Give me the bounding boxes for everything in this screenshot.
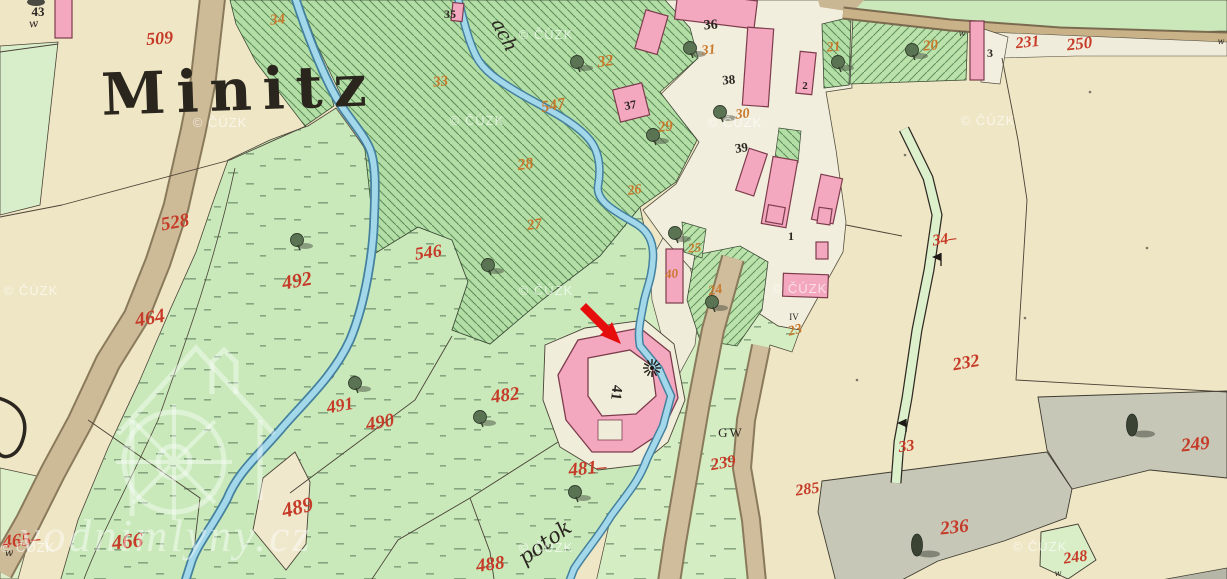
house-number-black: 38 xyxy=(722,72,737,88)
cuzk-watermark-text: © ČÚZK xyxy=(193,115,248,130)
tree-canopy xyxy=(569,486,582,499)
cuzk-watermark-text: © ČÚZK xyxy=(773,281,828,296)
parcel-number-orange: 33 xyxy=(431,73,449,91)
tree-canopy xyxy=(912,534,923,556)
parcel-number-orange: 24 xyxy=(706,282,723,299)
cuzk-watermark-text: © ČÚZK xyxy=(4,283,59,298)
cuzk-watermark-text: © ČÚZK xyxy=(961,113,1016,128)
field-speck xyxy=(904,154,907,157)
parcel-number-orange: 40 xyxy=(663,265,679,281)
tree-canopy xyxy=(482,259,495,272)
cuzk-watermark-text: © ČÚZK xyxy=(1013,539,1068,554)
parcel-number-red: 546 xyxy=(413,240,443,264)
cuzk-watermark-text: © ČÚZK xyxy=(708,115,763,130)
parcel-number-orange: 29 xyxy=(656,118,675,136)
script-w-mark: w xyxy=(1055,569,1062,578)
wheel-hub xyxy=(650,366,654,370)
cuzk-watermark-text: © ČÚZK xyxy=(519,540,574,555)
parcel-number-red: 250 xyxy=(1065,33,1094,55)
field-speck xyxy=(1146,247,1149,250)
house-number-black: 2 xyxy=(802,80,808,92)
script-w-mark: w xyxy=(959,29,966,38)
parcel-number-orange: 21 xyxy=(825,39,841,55)
parcel-number-red: 482 xyxy=(489,383,522,408)
parcel-number-red: 236 xyxy=(938,516,970,540)
building xyxy=(817,207,832,225)
field-speck xyxy=(1089,91,1092,94)
parcel-number-orange: 31 xyxy=(700,42,716,58)
parcel-number-red: 231 xyxy=(1014,33,1041,53)
tree-canopy xyxy=(684,42,697,55)
roman-iv-label: IV xyxy=(789,312,799,322)
cuzk-watermark-text: © ČÚZK xyxy=(519,27,574,42)
building xyxy=(816,242,828,259)
parcel-number-orange: 27 xyxy=(525,216,544,234)
parcel-number-orange: 34 xyxy=(268,11,286,29)
parcel-number-red: 285 xyxy=(793,479,820,499)
parcel-number-red: 509 xyxy=(145,27,173,49)
parcel-number-red: 481– xyxy=(566,456,607,481)
watermark-site-text: vodnimlyny.cz xyxy=(20,511,313,561)
tree-canopy xyxy=(474,411,487,424)
tree-canopy xyxy=(669,227,682,240)
building xyxy=(766,205,786,225)
parcel-number-red: 33 xyxy=(896,437,915,456)
house-number-black: 36 xyxy=(703,18,718,34)
house-number-black: 3 xyxy=(987,46,993,60)
field-speck xyxy=(1024,317,1027,320)
cuzk-watermark-text: © ČÚZK xyxy=(450,113,505,128)
tree-canopy xyxy=(832,56,845,69)
house-number-black: 1 xyxy=(788,229,794,243)
cadastral-map-viewport: Minitz ach potok GW IV 41 50952846449254… xyxy=(0,0,1227,579)
parcel-number-orange: 25 xyxy=(686,239,702,255)
parcel-number-orange: 32 xyxy=(595,52,614,71)
cuzk-watermark-text: © ČÚZK xyxy=(519,283,574,298)
parcel-number-red: 34– xyxy=(930,229,957,249)
building xyxy=(970,21,984,80)
mill-parcel-number: 41 xyxy=(607,384,625,401)
building xyxy=(55,0,72,38)
tree-canopy xyxy=(291,234,304,247)
cadastral-map: Minitz ach potok GW IV 41 50952846449254… xyxy=(0,0,1227,579)
parcel-number-orange: 20 xyxy=(921,37,939,55)
house-number-black: 37 xyxy=(623,97,637,113)
parcel-number-red: 249 xyxy=(1179,433,1211,457)
tree-canopy xyxy=(349,377,362,390)
mill-courtyard-annex xyxy=(598,420,622,440)
parcel-number-red: 488 xyxy=(474,552,507,577)
script-w-mark: w xyxy=(1218,37,1225,46)
tree-canopy xyxy=(906,44,919,57)
tree-canopy xyxy=(1127,414,1138,436)
parcel-number-orange: 28 xyxy=(515,155,534,174)
field-speck xyxy=(856,379,859,382)
house-number-black: 39 xyxy=(734,139,749,156)
gw-label: GW xyxy=(718,425,744,440)
house-number-black: 35 xyxy=(444,7,456,21)
parcel-number-orange: 26 xyxy=(626,182,643,199)
tree-canopy xyxy=(571,56,584,69)
building xyxy=(742,27,773,107)
